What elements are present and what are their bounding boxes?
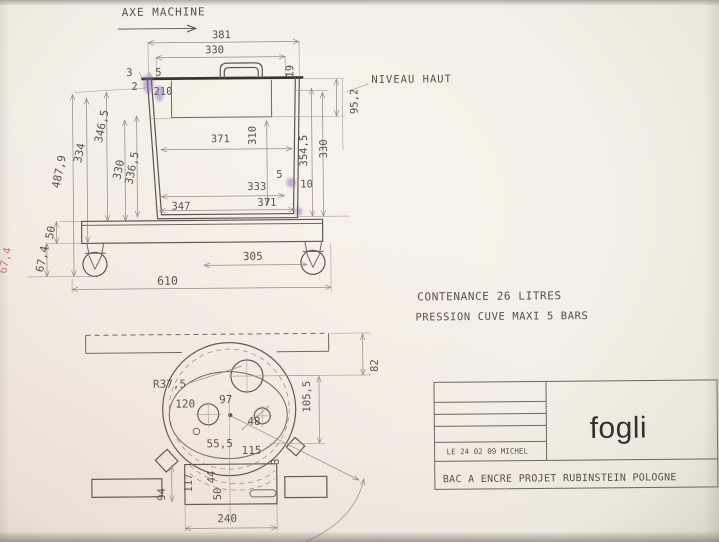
dim-height-b: 346,5 (92, 109, 111, 144)
top-view-leaders (188, 365, 365, 542)
dimension-lines-bottom (72, 243, 331, 293)
dim-box-c: 50 (212, 488, 224, 501)
dim-box-b: 44 (206, 471, 218, 484)
tank-top-outline (154, 342, 322, 526)
dim-inner-depth: 310 (247, 126, 259, 145)
dim-right-depth-b: 330 (318, 139, 330, 158)
dim-lid-edge: 19 (284, 65, 296, 78)
hole-small (193, 428, 199, 434)
drawing-title: BAC A ENCRE PROJET RUBINSTEIN POLOGNE (443, 472, 677, 485)
support-bar-top (86, 333, 329, 353)
dim-overall-width: 381 (212, 29, 231, 41)
dim-wheel-spacing: 305 (243, 250, 263, 263)
dim-box-width: 240 (217, 512, 237, 525)
dim-bottom-lip: 10 (300, 178, 313, 190)
caster-wheel-right (301, 241, 325, 274)
dim-bottom-width-outer: 371 (257, 197, 276, 209)
dim-bar-offset: 82 (369, 359, 381, 372)
caster-wheel-left (83, 243, 107, 276)
dim-hole-b: 97 (219, 393, 232, 406)
dim-height-a: 334 (71, 142, 88, 164)
dim-offset-c: 105,5 (301, 381, 313, 413)
axis-machine-label: AXE MACHINE (122, 5, 206, 19)
dim-base-length: 610 (157, 274, 178, 288)
radius-arc (306, 479, 365, 542)
dim-right-depth-a: 354,5 (298, 135, 310, 167)
dim-caster-height-pink-note: 67,4 (0, 246, 14, 275)
side-box-right (285, 476, 327, 497)
notes: CONTENANCE 26 LITRES PRESSION CUVE MAXI … (415, 289, 588, 324)
axis-arrow (118, 28, 196, 29)
dim-offset-a: 55,5 (206, 437, 233, 450)
ink-smudge (294, 207, 302, 215)
dim-hole-c: 48 (247, 415, 260, 428)
dim-bottom-inner: 333 (247, 181, 266, 193)
dim-lip-b: 5 (155, 67, 161, 79)
dim-base-height: 50 (43, 225, 58, 241)
technical-drawing: AXE MACHINE 381 330 3 5 19 2 210 (0, 0, 719, 542)
ink-smudge (286, 178, 296, 188)
dim-level-depth: 95,2 (348, 89, 360, 114)
ink-smudge (143, 74, 153, 94)
niveau-haut-label: NIVEAU HAUT (371, 73, 452, 86)
dim-mid-width: 371 (211, 133, 230, 145)
center-box (185, 464, 277, 505)
dim-lip-a: 3 (126, 67, 132, 79)
foot-right (286, 437, 304, 455)
dim-inner-width: 330 (205, 44, 224, 56)
dim-bar-width: 94 (156, 488, 168, 501)
drawing-photo: AXE MACHINE 381 330 3 5 19 2 210 (0, 0, 719, 542)
dim-offset-b: 115 (242, 444, 262, 457)
handle (220, 63, 262, 78)
dim-caster-height: 67,4 (33, 244, 51, 273)
dim-bottom-gap: 5 (276, 169, 282, 181)
slot (250, 490, 276, 497)
company-logo: fogli (589, 412, 647, 446)
dim-height-total: 487,9 (49, 154, 68, 189)
top-view: 82 R37,5 (86, 333, 383, 542)
foot-left (155, 449, 178, 472)
dim-bottom-width-inner: 347 (171, 200, 190, 212)
front-view: AXE MACHINE 381 330 3 5 19 2 210 (0, 3, 454, 294)
dim-bar-offset-lines (265, 333, 371, 376)
title-block: fogli LE 24 02 09 MICHEL BAC A ENCRE PRO… (434, 380, 718, 489)
note-capacity: CONTENANCE 26 LITRES (417, 289, 562, 303)
base-cart (82, 219, 325, 276)
dim-wall-thickness: 2 (131, 81, 137, 93)
note-pressure: PRESSION CUVE MAXI 5 BARS (415, 310, 588, 324)
side-bar (92, 479, 162, 498)
dim-corner-radius: R37,5 (153, 378, 186, 391)
dim-hole-a: 120 (175, 397, 195, 410)
date-author: LE 24 02 09 MICHEL (447, 447, 529, 457)
level-window (171, 80, 271, 118)
level-dimension (148, 78, 368, 119)
dim-box-a: 117 (183, 473, 195, 492)
